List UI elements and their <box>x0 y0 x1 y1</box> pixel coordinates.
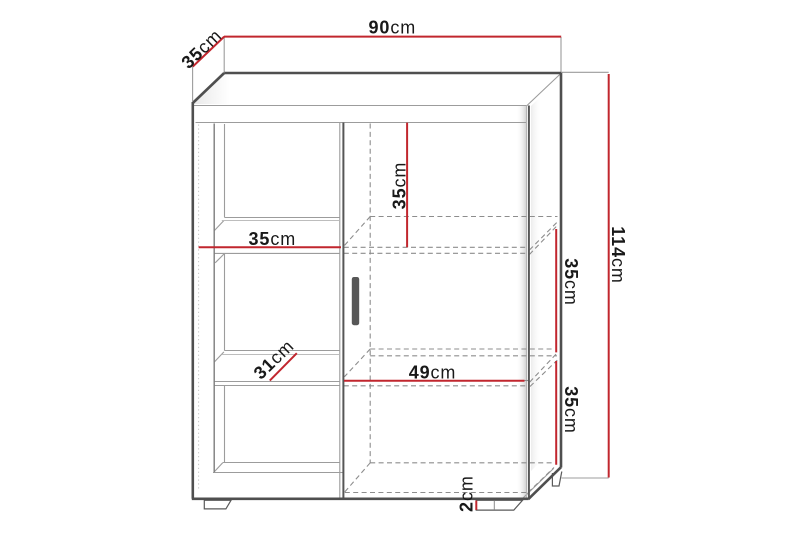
svg-text:35cm: 35cm <box>561 386 581 434</box>
svg-text:114cm: 114cm <box>608 226 628 284</box>
svg-text:90cm: 90cm <box>368 17 416 37</box>
svg-text:49cm: 49cm <box>409 363 457 383</box>
svg-text:2cm: 2cm <box>457 475 477 512</box>
svg-text:35cm: 35cm <box>561 258 581 306</box>
svg-text:35cm: 35cm <box>389 162 409 210</box>
svg-text:35cm: 35cm <box>248 229 296 249</box>
